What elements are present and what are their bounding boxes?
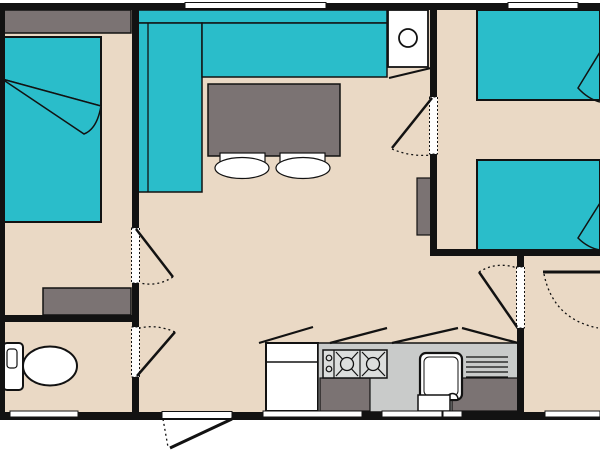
sofa-back — [137, 10, 387, 23]
window-bottom-1 — [10, 411, 78, 417]
doorway-bedroom3 — [517, 267, 525, 328]
doorway-bedroom1 — [132, 228, 140, 283]
toilet-bowl — [23, 347, 77, 386]
window-bottom-5 — [545, 411, 600, 417]
doorway-bathroom — [132, 327, 140, 377]
window-top-2 — [508, 3, 578, 9]
door-entrance-leaf — [170, 419, 232, 448]
stool-1 — [215, 158, 269, 179]
window-top-1 — [185, 3, 326, 9]
single-bed-1 — [477, 10, 600, 100]
sofa-bench-left — [137, 23, 202, 192]
dishwasher — [418, 395, 450, 411]
wardrobe — [417, 178, 432, 235]
wall-bathroom-top — [0, 315, 132, 322]
stool-2 — [276, 158, 330, 179]
wall-bedroom2-bottom — [430, 249, 600, 256]
entrance-opening — [162, 412, 232, 419]
burner-1 — [341, 358, 354, 371]
burner-2 — [367, 358, 380, 371]
window-bottom-2 — [263, 411, 362, 417]
toilet-tank — [3, 343, 23, 390]
single-bed-2 — [477, 160, 600, 250]
cabinet-left — [320, 378, 370, 411]
sofa-bench-top — [202, 23, 387, 77]
dining-table — [208, 84, 340, 156]
window-bottom-3 — [382, 411, 442, 417]
fridge — [266, 343, 318, 411]
floorplan-svg — [0, 0, 600, 450]
boiler — [399, 29, 417, 47]
wall-left — [0, 3, 5, 420]
headboard-shelf — [0, 10, 131, 33]
sink — [420, 353, 462, 400]
floorplan — [0, 0, 600, 450]
window-bottom-4 — [443, 411, 462, 417]
bedroom-shelf — [43, 288, 131, 315]
doorway-bedroom2 — [430, 97, 438, 154]
door-entrance-swing — [163, 419, 168, 447]
